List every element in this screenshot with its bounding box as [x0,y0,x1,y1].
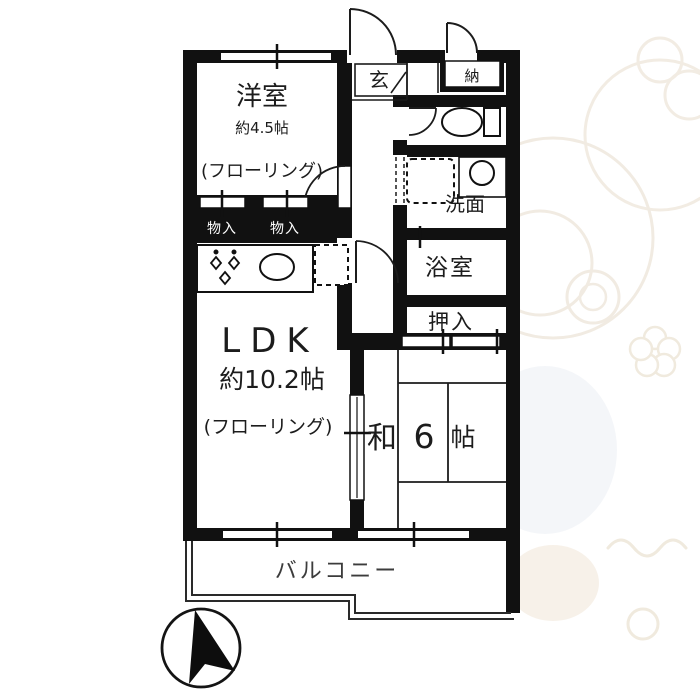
ldk-floor: (フローリング) [204,416,333,438]
ldk-label: LDK [221,321,318,361]
wall-toilet-washroom [393,145,520,157]
closet-label: 押入 [428,310,474,334]
floorplan-canvas: 洋室 約4.5帖 (フローリング) 玄 納 物入 物入 洗面 浴室 押入 LDK… [0,0,700,700]
western-room-floor: (フローリング) [201,161,323,182]
storage-top-label: 納 [464,67,479,85]
toilet-room [442,108,500,136]
kitchen [197,245,348,292]
toilet-icon [442,108,482,136]
wall-washroom-bath [393,228,520,240]
japanese-room-prefix: 和 [367,421,397,456]
wall-toilet-top [393,95,520,107]
kitchen-sink-icon [260,254,294,280]
toilet-door-gap [393,107,407,140]
washbasin-icon [470,161,494,185]
closet-slider-right [263,197,308,208]
washroom-door-gap [393,155,407,205]
ldk-size: 約10.2帖 [219,365,325,394]
compass-icon [162,609,240,687]
japanese-room-unit: 帖 [450,423,475,452]
washroom-label: 洗面 [445,192,485,216]
japanese-room-num: 6 [414,417,435,456]
western-room-door-leaf [338,166,351,208]
balcony-label: バルコニー [275,559,400,584]
bathroom-label: 浴室 [425,255,475,281]
storage-small-left-label: 物入 [207,221,237,237]
western-room-label: 洋室 [236,82,288,112]
wall-bath-closet [393,295,520,307]
floorplan-page: 洋室 約4.5帖 (フローリング) 玄 納 物入 物入 洗面 浴室 押入 LDK… [0,0,700,700]
wall-left [183,50,197,537]
refrigerator-dashed-box [315,245,348,285]
western-room-size: 約4.5帖 [235,119,289,137]
oshiire-slider-right [452,336,500,347]
entrance-door-gap [347,50,397,63]
storage-door-arc [447,23,477,53]
storage-small-right-label: 物入 [270,221,300,237]
entrance-door-arc [350,9,396,55]
toilet-tank [484,108,500,136]
entrance-label: 玄 [369,68,389,92]
